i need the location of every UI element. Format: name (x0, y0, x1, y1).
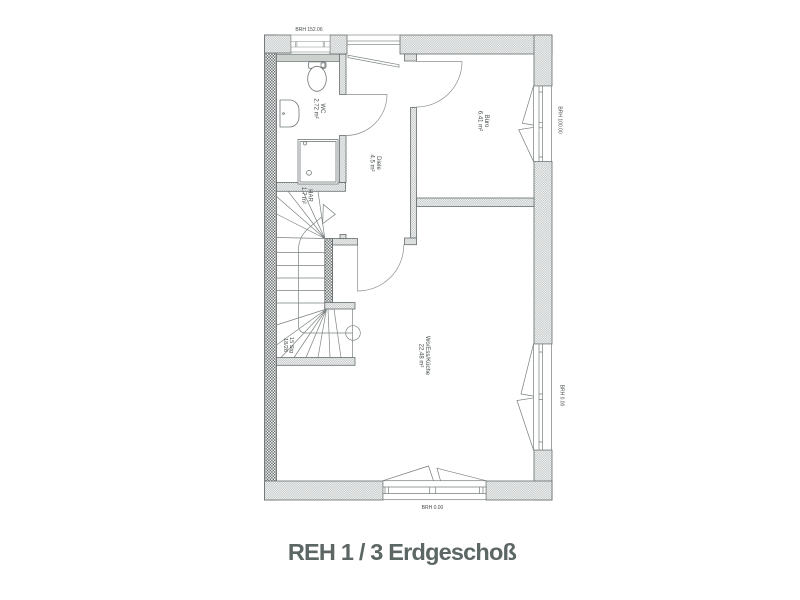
svg-text:BRH 0.00: BRH 0.00 (422, 505, 444, 511)
svg-text:BRH 100.00: BRH 100.00 (557, 106, 563, 133)
svg-text:15 Stg18/28: 15 Stg18/28 (282, 337, 294, 353)
svg-text:Diele4.5 m²: Diele4.5 m² (369, 154, 381, 171)
svg-text:REH 1 / 3 Erdgeschoß: REH 1 / 3 Erdgeschoß (288, 539, 517, 565)
svg-text:BRH 152.06: BRH 152.06 (295, 27, 322, 33)
svg-text:BRH 0.00: BRH 0.00 (559, 385, 565, 407)
svg-text:HAR1.7 m²: HAR1.7 m² (300, 187, 312, 204)
